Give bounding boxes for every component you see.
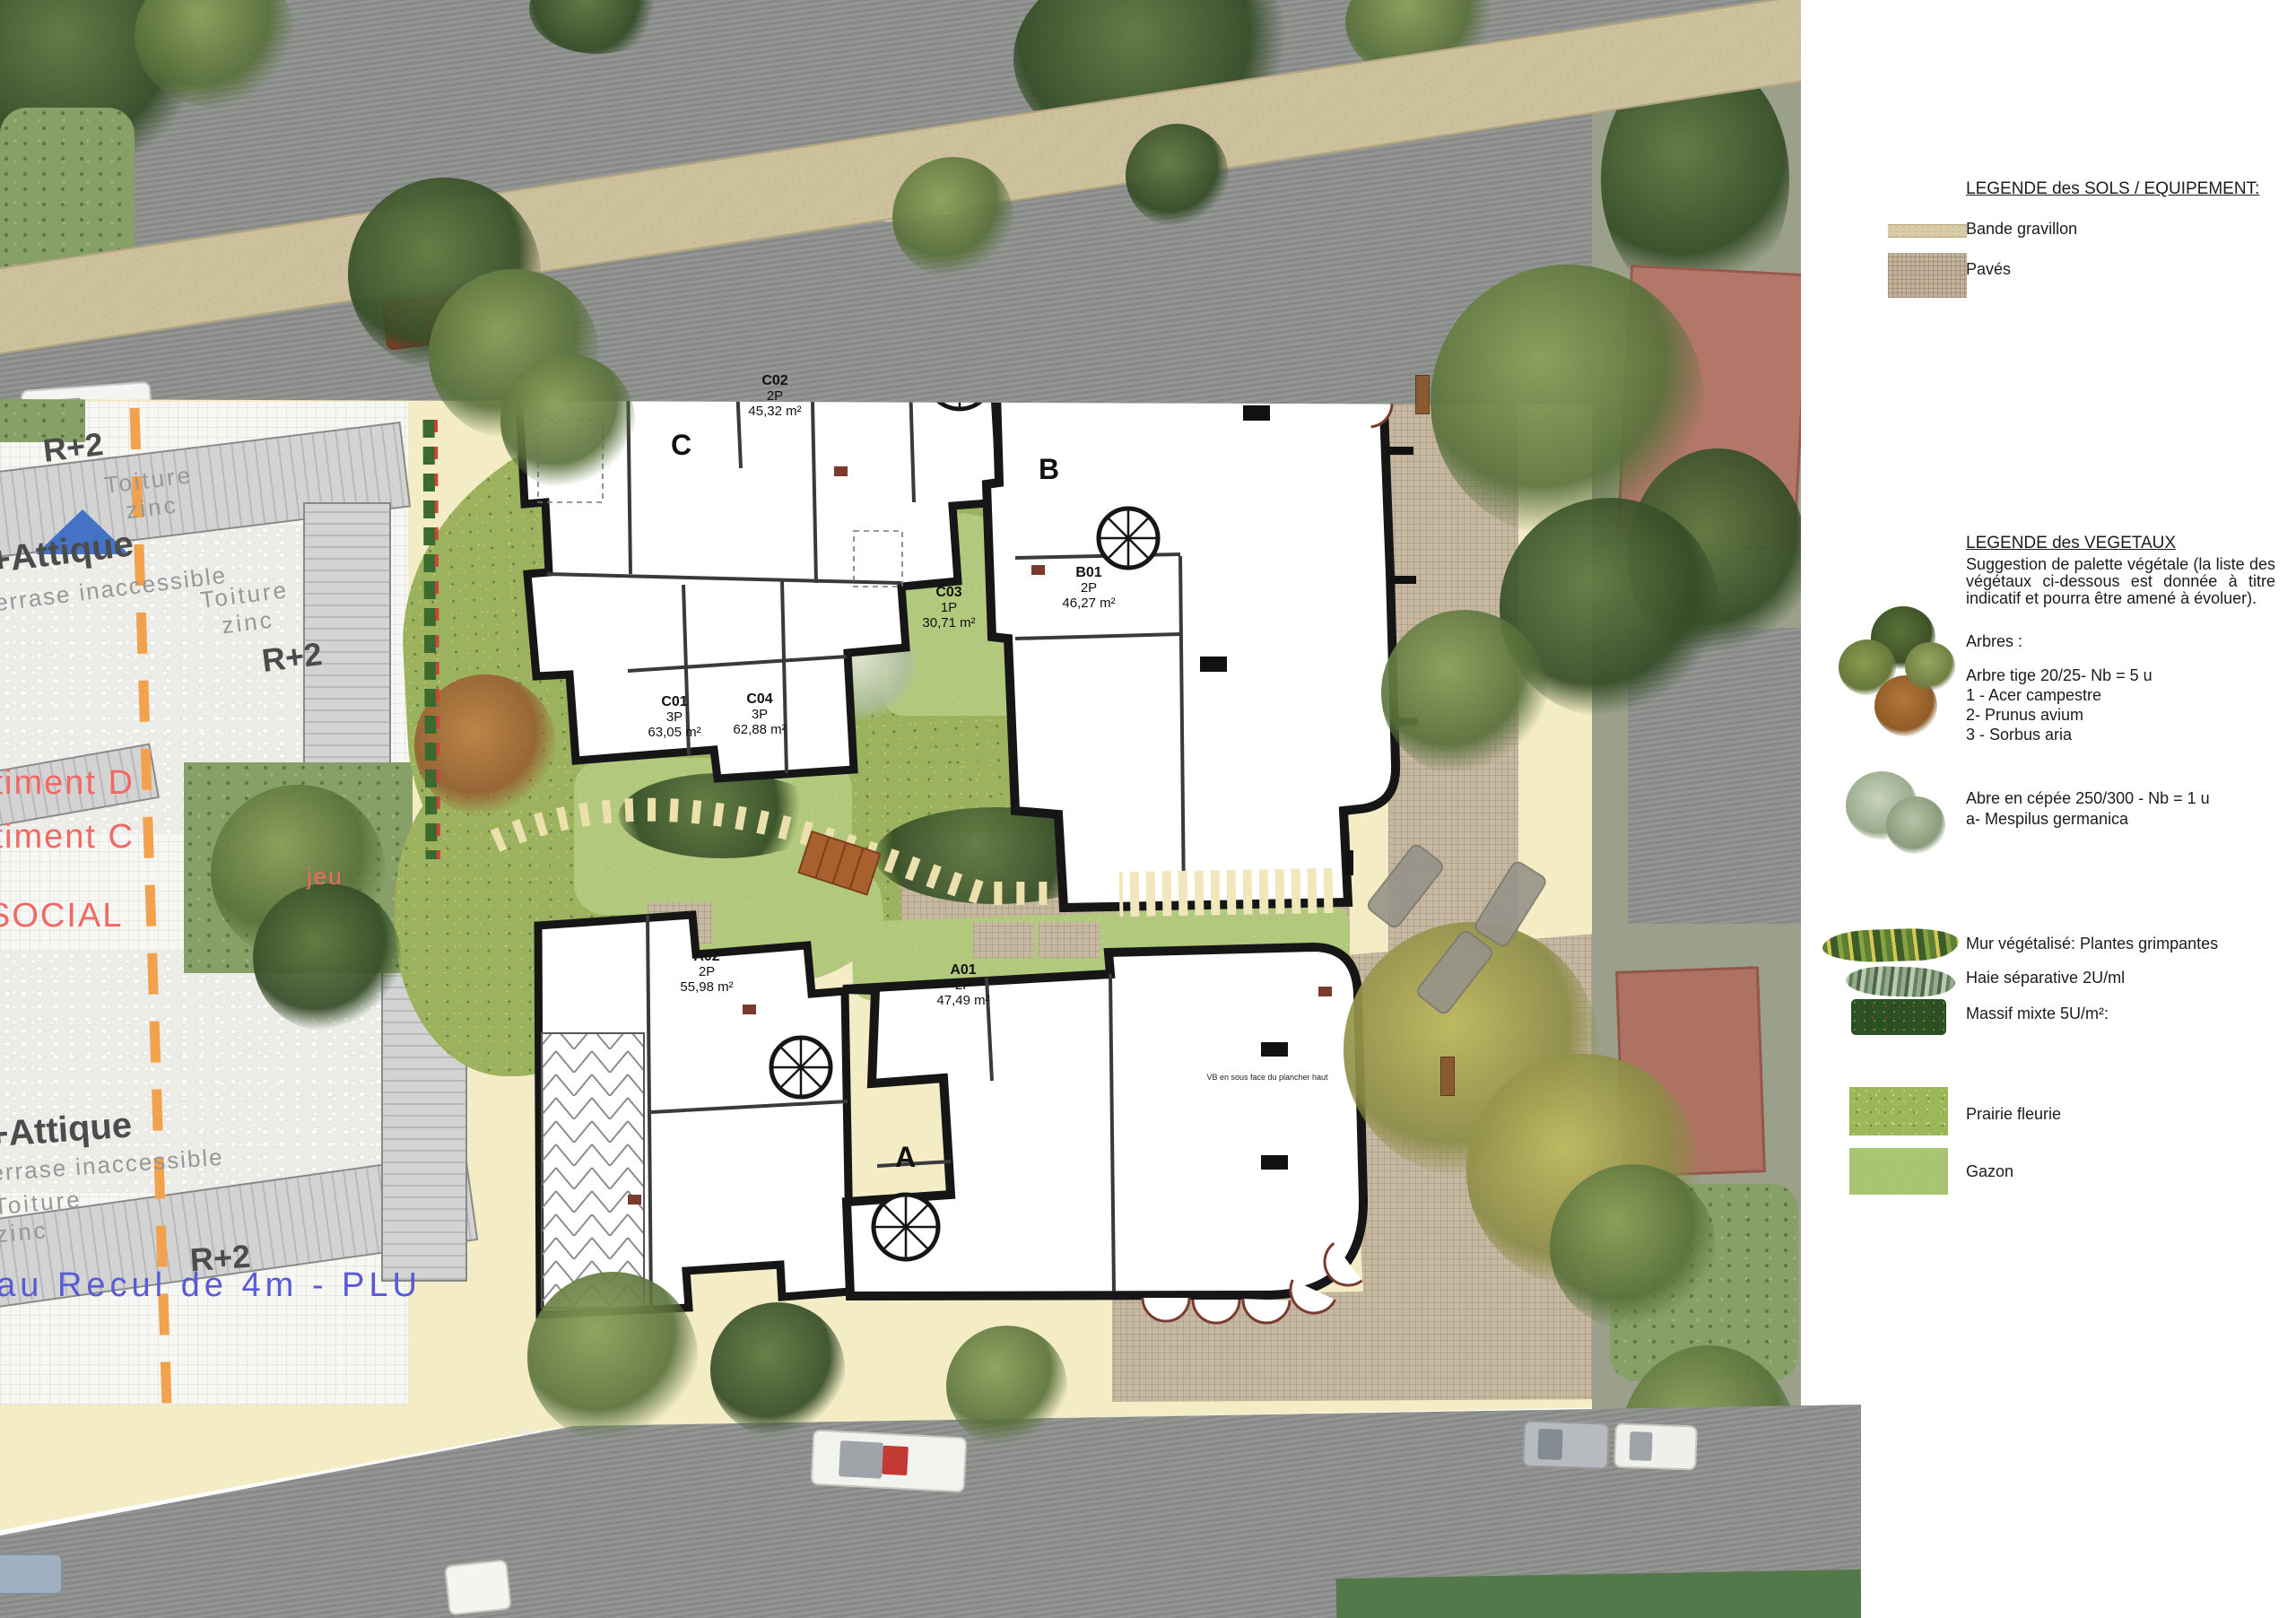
batiment-d-label: Bâtiment D [0,764,135,803]
batiment-c-label: Bâtiment C [0,818,135,857]
recul-plu-label: eau Recul de 4m - PLU [0,1266,422,1305]
legend-cepee: Abre en cépée 250/300 - Nb = 1 u [1966,789,2210,808]
prairie-swatch [1849,1087,1948,1135]
legend-tige-item-3: 3 - Sorbus aria [1966,726,2072,744]
bench [1415,375,1430,414]
site-plan-canvas: C022P45,32 m² C031P30,71 m² C013P63,05 m… [0,0,2296,1618]
unit-label-c04: C043P62,88 m² [692,692,827,737]
unit-label-a01: A012P47,49 m² [896,962,1031,1008]
legend-tige-item-1: 1 - Acer campestre [1966,686,2101,705]
r2-label-2: R+2 [260,635,325,680]
massif-swatch [1851,999,1946,1035]
legend-gravillon-label: Bande gravillon [1966,220,2077,239]
building-letter-a: A [895,1141,916,1174]
mur-vegetalise-swatch [1822,926,1959,963]
legend-sols-title: LEGENDE des SOLS / EQUIPEMENT: [1966,179,2259,199]
toiture-zinc-label-2: Toiturezinc [199,576,294,642]
toiture-zinc-label-3: Toiturezinc [0,1186,86,1248]
bench [1440,1057,1455,1096]
tree [710,1302,845,1437]
jeu-label: jeu [307,863,344,891]
unit-label-c02: C022P45,32 m² [708,373,842,419]
haie-swatch [1845,965,1955,998]
gravillon-swatch [1888,224,1967,238]
building-letter-c: C [671,429,691,462]
building-letter-b: B [1039,453,1059,486]
social-label: SOCIAL [0,897,123,935]
paves-swatch [1888,253,1967,298]
legend-arbres-heading: Arbres : [1966,632,2022,651]
tree [527,1272,698,1442]
tree [1431,265,1704,538]
arbre-cepee-icon [1837,762,1953,870]
plan-note-a: VB en sous face du plancher haut [1191,1073,1344,1083]
tree [1381,610,1547,776]
tree [1126,124,1229,227]
legend-panel: LEGENDE des SOLS / EQUIPEMENT: Bande gra… [1801,0,2296,1618]
legend-cepee-item: a- Mespilus germanica [1966,810,2128,829]
legend-tige-item-2: 2- Prunus avium [1966,706,2083,725]
legend-vegetaux-title: LEGENDE des VEGETAUX [1966,534,2176,553]
legend-massif-label: Massif mixte 5U/m²: [1966,1005,2109,1023]
tree [946,1326,1067,1447]
legend-mur-label: Mur végétalisé: Plantes grimpantes [1966,935,2218,953]
tree [1550,1164,1716,1330]
gazon-swatch [1849,1148,1948,1195]
legend-gazon-label: Gazon [1966,1162,2013,1181]
legend-prairie-label: Prairie fleurie [1966,1105,2061,1124]
r2-label-1: R+2 [41,425,106,470]
legend-arbre-tige: Arbre tige 20/25- Nb = 5 u [1966,666,2152,685]
unit-label-b01: B012P46,27 m² [1022,565,1156,611]
tree [892,157,1013,278]
tree [253,883,401,1031]
tree [500,354,635,489]
legend-haie-label: Haie séparative 2U/ml [1966,969,2125,987]
arbre-tige-icon [1828,599,1953,747]
legend-paves-label: Pavés [1966,260,2011,279]
legend-vegetaux-intro: Suggestion de palette végétale (la liste… [1966,556,2275,607]
unit-label-a02: A022P55,98 m² [639,949,774,995]
unit-label-c03: C031P30,71 m² [882,585,1016,631]
